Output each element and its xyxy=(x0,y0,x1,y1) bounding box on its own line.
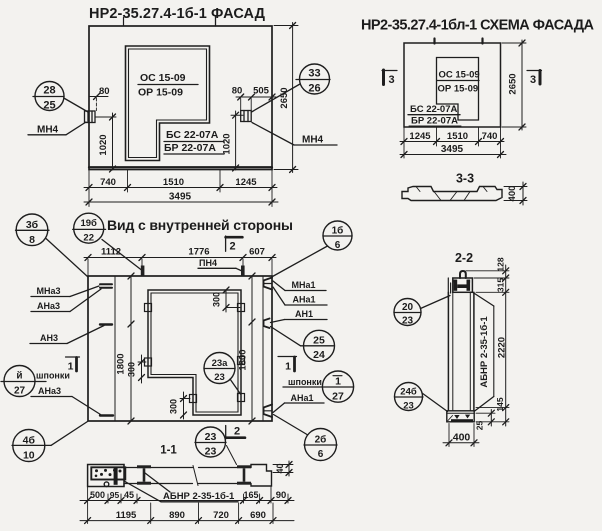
svg-text:БС 22-07А: БС 22-07А xyxy=(410,104,458,115)
svg-text:40: 40 xyxy=(275,463,285,473)
svg-text:25: 25 xyxy=(43,100,55,112)
svg-text:1020: 1020 xyxy=(98,134,109,155)
svg-text:90: 90 xyxy=(276,490,287,501)
svg-text:690: 690 xyxy=(250,510,266,521)
svg-text:1: 1 xyxy=(335,375,341,387)
svg-text:АНа3: АНа3 xyxy=(38,386,61,396)
svg-text:500: 500 xyxy=(90,490,105,500)
svg-text:607: 607 xyxy=(249,247,265,258)
svg-text:1112: 1112 xyxy=(101,247,121,258)
svg-text:23: 23 xyxy=(214,372,225,383)
svg-text:АНа1: АНа1 xyxy=(291,393,314,403)
svg-text:4б: 4б xyxy=(23,434,36,446)
svg-text:23: 23 xyxy=(403,401,414,412)
svg-text:1776: 1776 xyxy=(188,247,209,258)
svg-text:165: 165 xyxy=(243,490,258,500)
svg-text:1800: 1800 xyxy=(116,353,127,374)
svg-text:8: 8 xyxy=(29,234,35,246)
svg-text:23: 23 xyxy=(402,316,414,327)
svg-text:1800: 1800 xyxy=(238,349,249,370)
svg-text:3: 3 xyxy=(530,74,536,86)
svg-text:28: 28 xyxy=(43,85,55,97)
svg-text:ОС 15-09: ОС 15-09 xyxy=(439,70,480,81)
svg-text:1195: 1195 xyxy=(116,510,137,521)
svg-text:6: 6 xyxy=(335,240,341,251)
svg-text:1245: 1245 xyxy=(409,131,431,142)
svg-text:БР 22-07А: БР 22-07А xyxy=(411,116,458,127)
svg-text:БС 22-07А: БС 22-07А xyxy=(166,129,219,141)
svg-text:45: 45 xyxy=(124,490,134,500)
svg-text:ОР 15-09: ОР 15-09 xyxy=(138,87,183,99)
svg-text:315: 315 xyxy=(496,278,506,292)
svg-text:6: 6 xyxy=(318,449,324,460)
svg-text:МН4: МН4 xyxy=(302,135,324,146)
svg-text:19б: 19б xyxy=(80,218,97,229)
svg-text:1245: 1245 xyxy=(235,177,257,188)
svg-text:1-1: 1-1 xyxy=(160,445,177,457)
svg-text:95: 95 xyxy=(110,490,120,500)
svg-text:3495: 3495 xyxy=(169,192,192,203)
svg-text:128: 128 xyxy=(496,257,506,271)
svg-text:2: 2 xyxy=(234,426,240,438)
svg-text:1510: 1510 xyxy=(447,131,468,142)
svg-text:1б: 1б xyxy=(332,225,344,237)
svg-text:АБНР 2-35-1б-1: АБНР 2-35-1б-1 xyxy=(479,316,490,388)
svg-text:2220: 2220 xyxy=(497,337,508,358)
svg-text:10: 10 xyxy=(23,449,35,461)
svg-text:400: 400 xyxy=(453,432,471,444)
svg-text:25: 25 xyxy=(313,334,325,346)
svg-text:24б: 24б xyxy=(400,387,417,398)
svg-text:2650: 2650 xyxy=(508,73,519,94)
svg-text:АН3: АН3 xyxy=(40,333,58,343)
svg-text:ПН4: ПН4 xyxy=(199,258,217,268)
svg-text:3: 3 xyxy=(388,74,394,86)
svg-text:2-2: 2-2 xyxy=(455,251,473,265)
svg-text:ОР 15-09: ОР 15-09 xyxy=(438,84,479,95)
svg-text:23а: 23а xyxy=(212,358,229,369)
svg-text:145: 145 xyxy=(495,397,505,411)
svg-text:БР 22-07А: БР 22-07А xyxy=(164,142,216,154)
svg-text:3-3: 3-3 xyxy=(456,172,474,186)
svg-text:23: 23 xyxy=(205,431,217,443)
svg-text:890: 890 xyxy=(169,510,185,521)
svg-text:3б: 3б xyxy=(26,219,39,231)
svg-text:27: 27 xyxy=(332,391,344,403)
svg-text:ОС 15-09: ОС 15-09 xyxy=(140,72,186,84)
svg-text:1510: 1510 xyxy=(163,177,184,188)
svg-text:300: 300 xyxy=(127,362,137,377)
svg-text:МН4: МН4 xyxy=(37,125,59,136)
svg-text:740: 740 xyxy=(482,131,498,142)
svg-text:80: 80 xyxy=(232,86,243,97)
svg-text:300: 300 xyxy=(212,292,222,307)
svg-text:НР2-35.27.4-1б-1 ФАСАД: НР2-35.27.4-1б-1 ФАСАД xyxy=(89,6,266,22)
svg-text:1: 1 xyxy=(285,361,291,373)
svg-text:Вид с внутренней стороны: Вид с внутренней стороны xyxy=(107,217,293,233)
svg-text:80: 80 xyxy=(99,86,110,97)
svg-text:400: 400 xyxy=(507,186,518,202)
svg-text:й: й xyxy=(16,371,22,382)
svg-text:3495: 3495 xyxy=(441,144,464,155)
svg-text:720: 720 xyxy=(213,510,229,521)
svg-text:505: 505 xyxy=(253,86,270,97)
svg-text:20: 20 xyxy=(402,302,414,313)
svg-text:2б: 2б xyxy=(315,434,327,446)
svg-text:25: 25 xyxy=(475,421,485,431)
svg-text:1020: 1020 xyxy=(222,133,233,154)
svg-text:26: 26 xyxy=(308,83,320,95)
svg-text:НР2-35.27.4-1бл-1 СХЕМА ФАСАДА: НР2-35.27.4-1бл-1 СХЕМА ФАСАДА xyxy=(361,18,595,34)
svg-text:300: 300 xyxy=(169,399,179,414)
svg-text:АНа3: АНа3 xyxy=(37,301,60,311)
svg-text:МНа3: МНа3 xyxy=(37,286,61,296)
svg-text:23: 23 xyxy=(205,446,217,458)
svg-text:МНа1: МНа1 xyxy=(292,280,316,290)
svg-text:33: 33 xyxy=(308,68,320,80)
svg-text:АН1: АН1 xyxy=(295,309,313,319)
svg-text:АНа1: АНа1 xyxy=(293,295,316,305)
svg-text:740: 740 xyxy=(100,177,116,188)
svg-text:шпонки: шпонки xyxy=(36,371,70,381)
svg-text:2: 2 xyxy=(229,241,235,253)
svg-text:24: 24 xyxy=(313,349,325,361)
svg-text:27: 27 xyxy=(14,386,26,397)
svg-text:шпонки: шпонки xyxy=(288,377,322,387)
svg-text:22: 22 xyxy=(83,233,94,244)
